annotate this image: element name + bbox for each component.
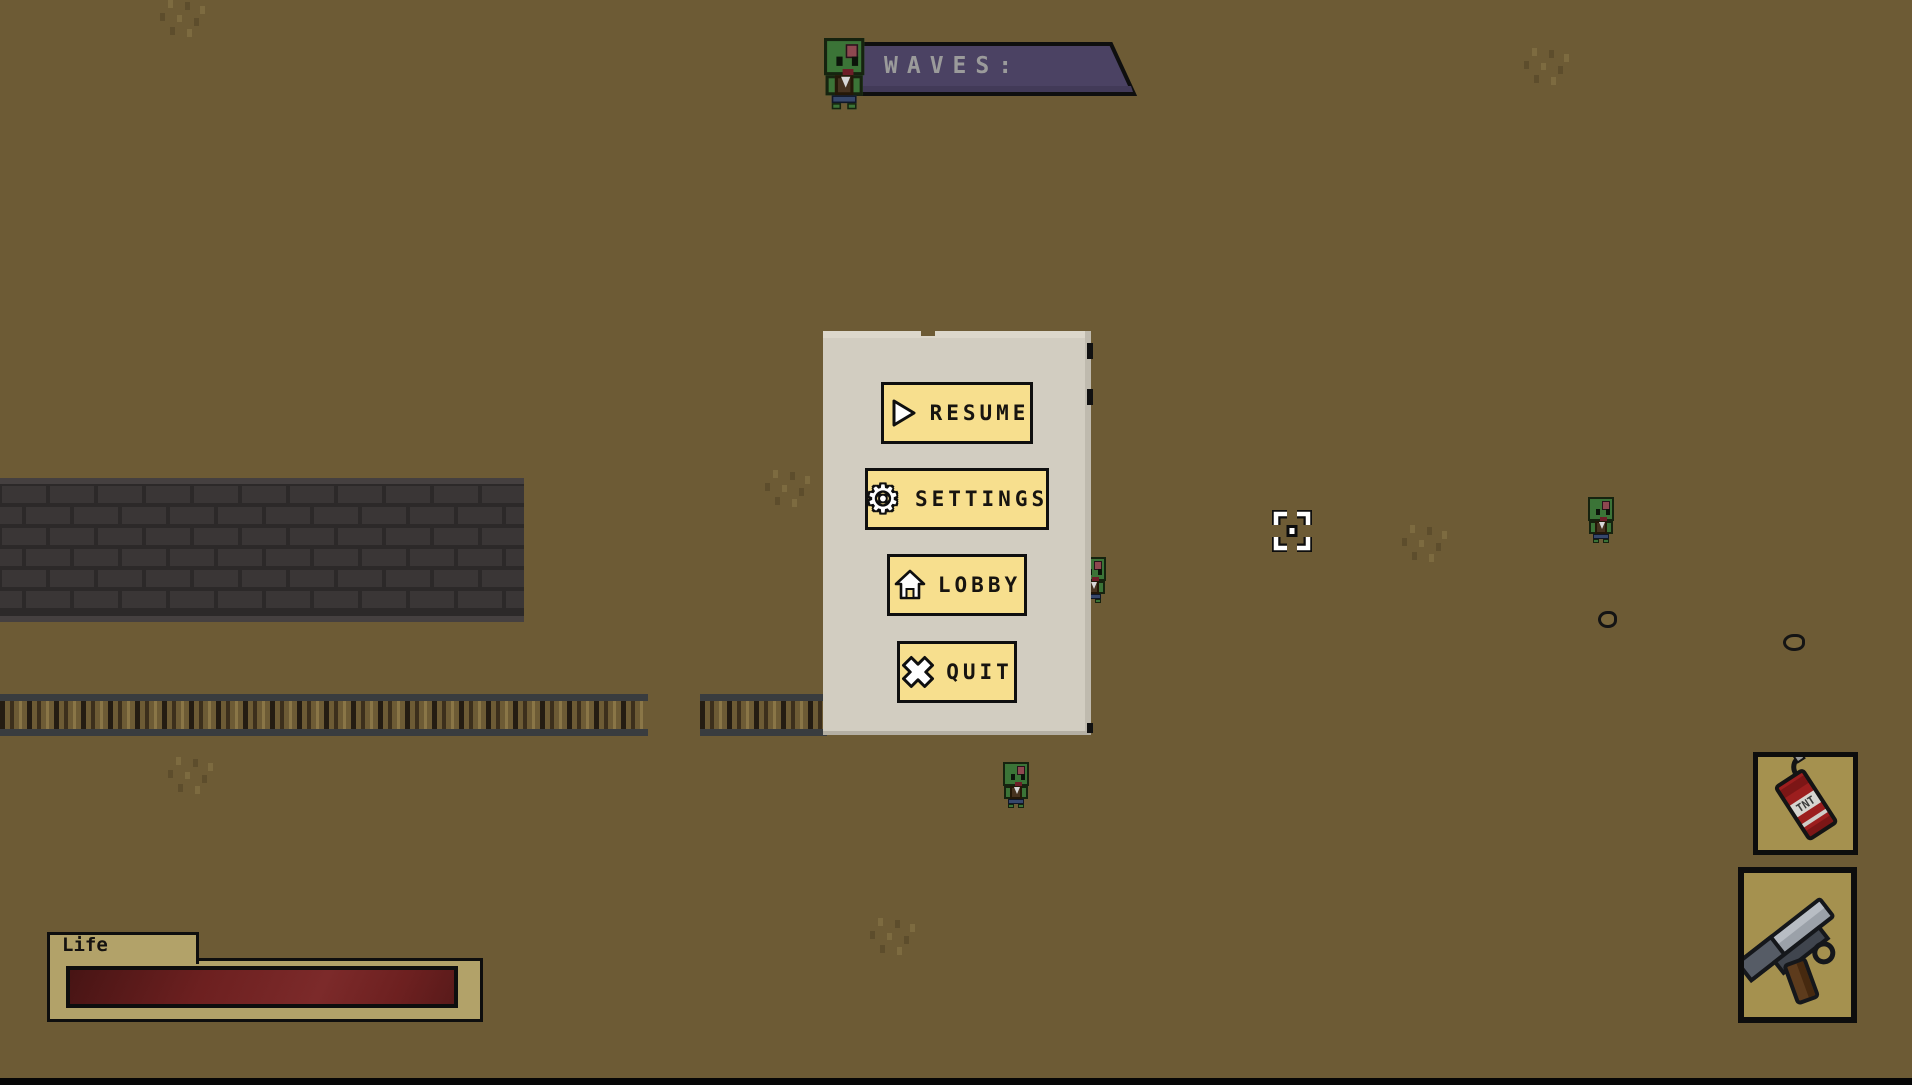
letterbox-bar — [0, 1078, 1912, 1085]
panel-edge-mark — [1087, 723, 1093, 733]
crosshair-icon — [1272, 510, 1312, 552]
quit-button[interactable]: QUIT — [897, 641, 1017, 703]
quit-label: QUIT — [946, 660, 1013, 684]
inventory-slot-gun[interactable] — [1738, 867, 1857, 1023]
play-icon — [885, 396, 919, 430]
gear-icon: ⚙ — [866, 482, 904, 516]
settings-label: SETTINGS — [915, 487, 1048, 511]
dirt-speckles — [1400, 525, 1452, 563]
zombie-sprite — [1588, 497, 1614, 543]
health-bar-fill — [70, 970, 454, 1004]
panel-highlight — [823, 331, 1091, 338]
lobby-button[interactable]: LOBBY — [887, 554, 1027, 616]
settings-button[interactable]: ⚙ SETTINGS — [865, 468, 1049, 530]
resume-button[interactable]: RESUME — [881, 382, 1033, 444]
health-bar — [66, 966, 458, 1008]
zombie-sprite — [824, 38, 864, 109]
railroad-track-right — [700, 694, 827, 736]
crosshair-reticle — [1272, 510, 1312, 556]
panel-edge-mark — [1087, 389, 1093, 405]
x-icon — [901, 655, 935, 689]
railroad-track-left — [0, 694, 648, 736]
revolver-icon — [1744, 873, 1851, 1017]
game-viewport: WAVES: — [0, 0, 1912, 1085]
zombie-sprite — [1003, 762, 1029, 808]
dynamite-icon: TNT — [1758, 757, 1853, 850]
panel-edge-mark — [1087, 343, 1093, 359]
panel-shadow-bottom — [823, 731, 1091, 735]
dirt-speckles — [1522, 48, 1574, 86]
brick-wall — [0, 478, 524, 622]
dirt-speckles — [158, 0, 210, 38]
ground-debris — [1783, 634, 1805, 651]
dirt-speckles — [763, 470, 815, 508]
dirt-speckles — [166, 757, 218, 795]
lobby-label: LOBBY — [938, 573, 1021, 597]
life-label: Life — [62, 934, 108, 956]
pause-menu-panel: RESUME ⚙ SETTINGS LOBBY QUIT — [823, 331, 1091, 735]
waves-label: WAVES: — [884, 53, 1021, 79]
ground-debris — [1598, 611, 1617, 628]
inventory-slot-tnt[interactable]: TNT — [1753, 752, 1858, 855]
panel-notch — [921, 331, 935, 336]
brick-wall-graphic — [0, 478, 524, 622]
resume-label: RESUME — [930, 401, 1030, 425]
dirt-speckles — [868, 918, 920, 956]
home-icon — [893, 568, 927, 602]
